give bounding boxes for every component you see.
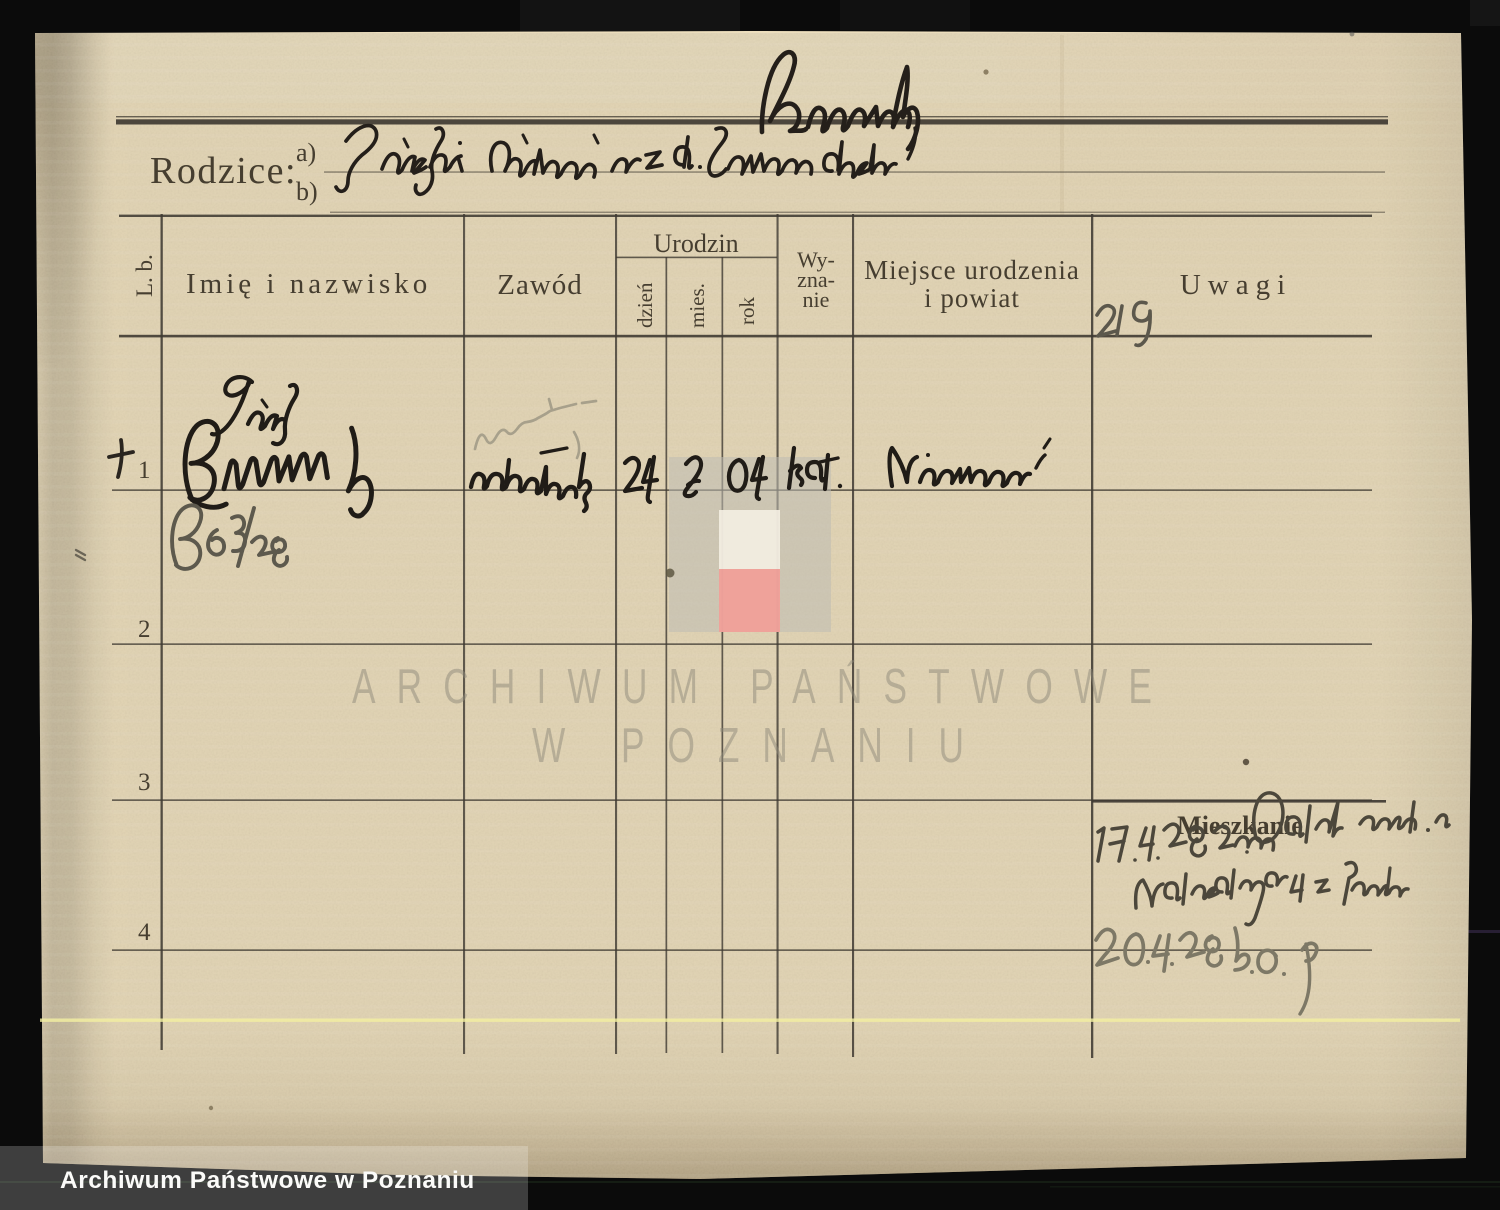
svg-text:L. b.: L. b.: [132, 254, 157, 297]
svg-text:2: 2: [138, 616, 151, 643]
svg-text:rok: rok: [735, 297, 759, 325]
svg-text:Miejsce urodzenia: Miejsce urodzenia: [864, 255, 1080, 285]
svg-text:4: 4: [138, 919, 151, 946]
svg-text:b): b): [296, 177, 318, 206]
svg-text:Uwagi: Uwagi: [1180, 269, 1292, 301]
svg-text:Imię i nazwisko: Imię i nazwisko: [186, 268, 431, 300]
svg-text:Urodzin: Urodzin: [653, 229, 738, 258]
svg-text:a): a): [296, 138, 316, 167]
svg-text:mies.: mies.: [685, 283, 709, 328]
svg-text:Rodzice:: Rodzice:: [150, 150, 297, 192]
svg-text:1: 1: [138, 457, 151, 484]
svg-text:3: 3: [138, 769, 151, 796]
svg-text:Archiwum Państwowe w Poznaniu: Archiwum Państwowe w Poznaniu: [60, 1167, 475, 1194]
svg-text:Zawód: Zawód: [497, 269, 583, 301]
svg-text:nie: nie: [803, 287, 830, 312]
svg-text:i powiat: i powiat: [924, 283, 1020, 313]
svg-text:dzień: dzień: [633, 282, 657, 328]
